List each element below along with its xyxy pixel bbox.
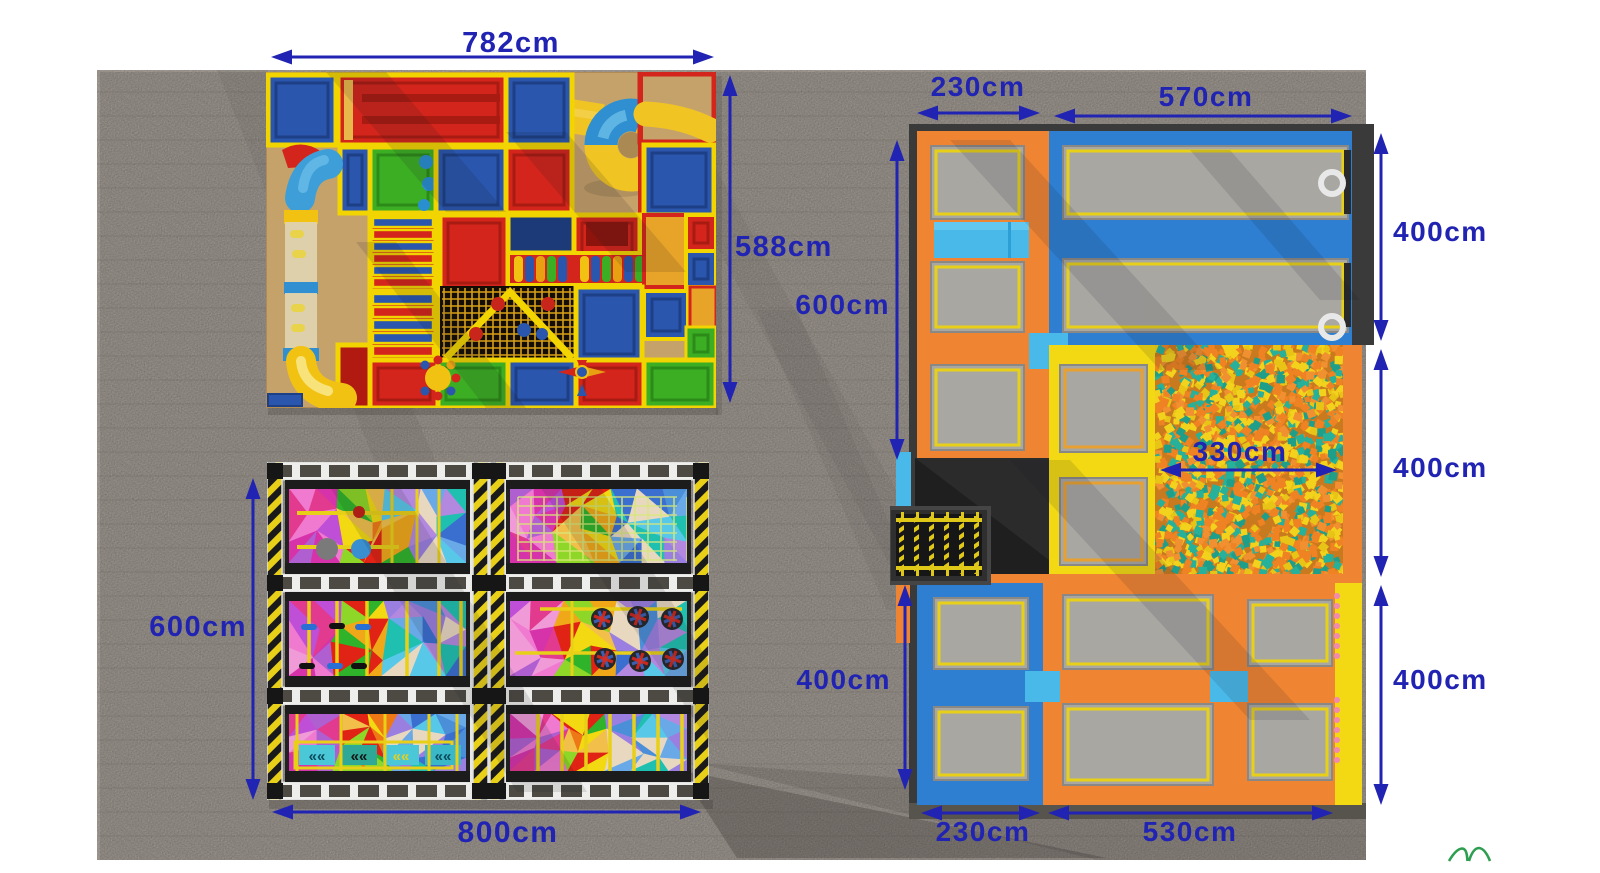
svg-text:400cm: 400cm [1393, 452, 1488, 483]
svg-text:600cm: 600cm [149, 611, 247, 643]
svg-text:230cm: 230cm [931, 71, 1026, 102]
svg-text:400cm: 400cm [1393, 664, 1488, 695]
svg-text:588cm: 588cm [735, 231, 833, 263]
svg-text:570cm: 570cm [1159, 81, 1254, 112]
svg-text:600cm: 600cm [795, 289, 890, 320]
svg-text:530cm: 530cm [1143, 816, 1238, 847]
svg-text:400cm: 400cm [1393, 216, 1488, 247]
svg-text:230cm: 230cm [936, 816, 1031, 847]
svg-text:782cm: 782cm [462, 27, 560, 59]
svg-text:800cm: 800cm [458, 816, 559, 849]
svg-text:400cm: 400cm [796, 664, 891, 695]
svg-text:330cm: 330cm [1193, 436, 1288, 467]
